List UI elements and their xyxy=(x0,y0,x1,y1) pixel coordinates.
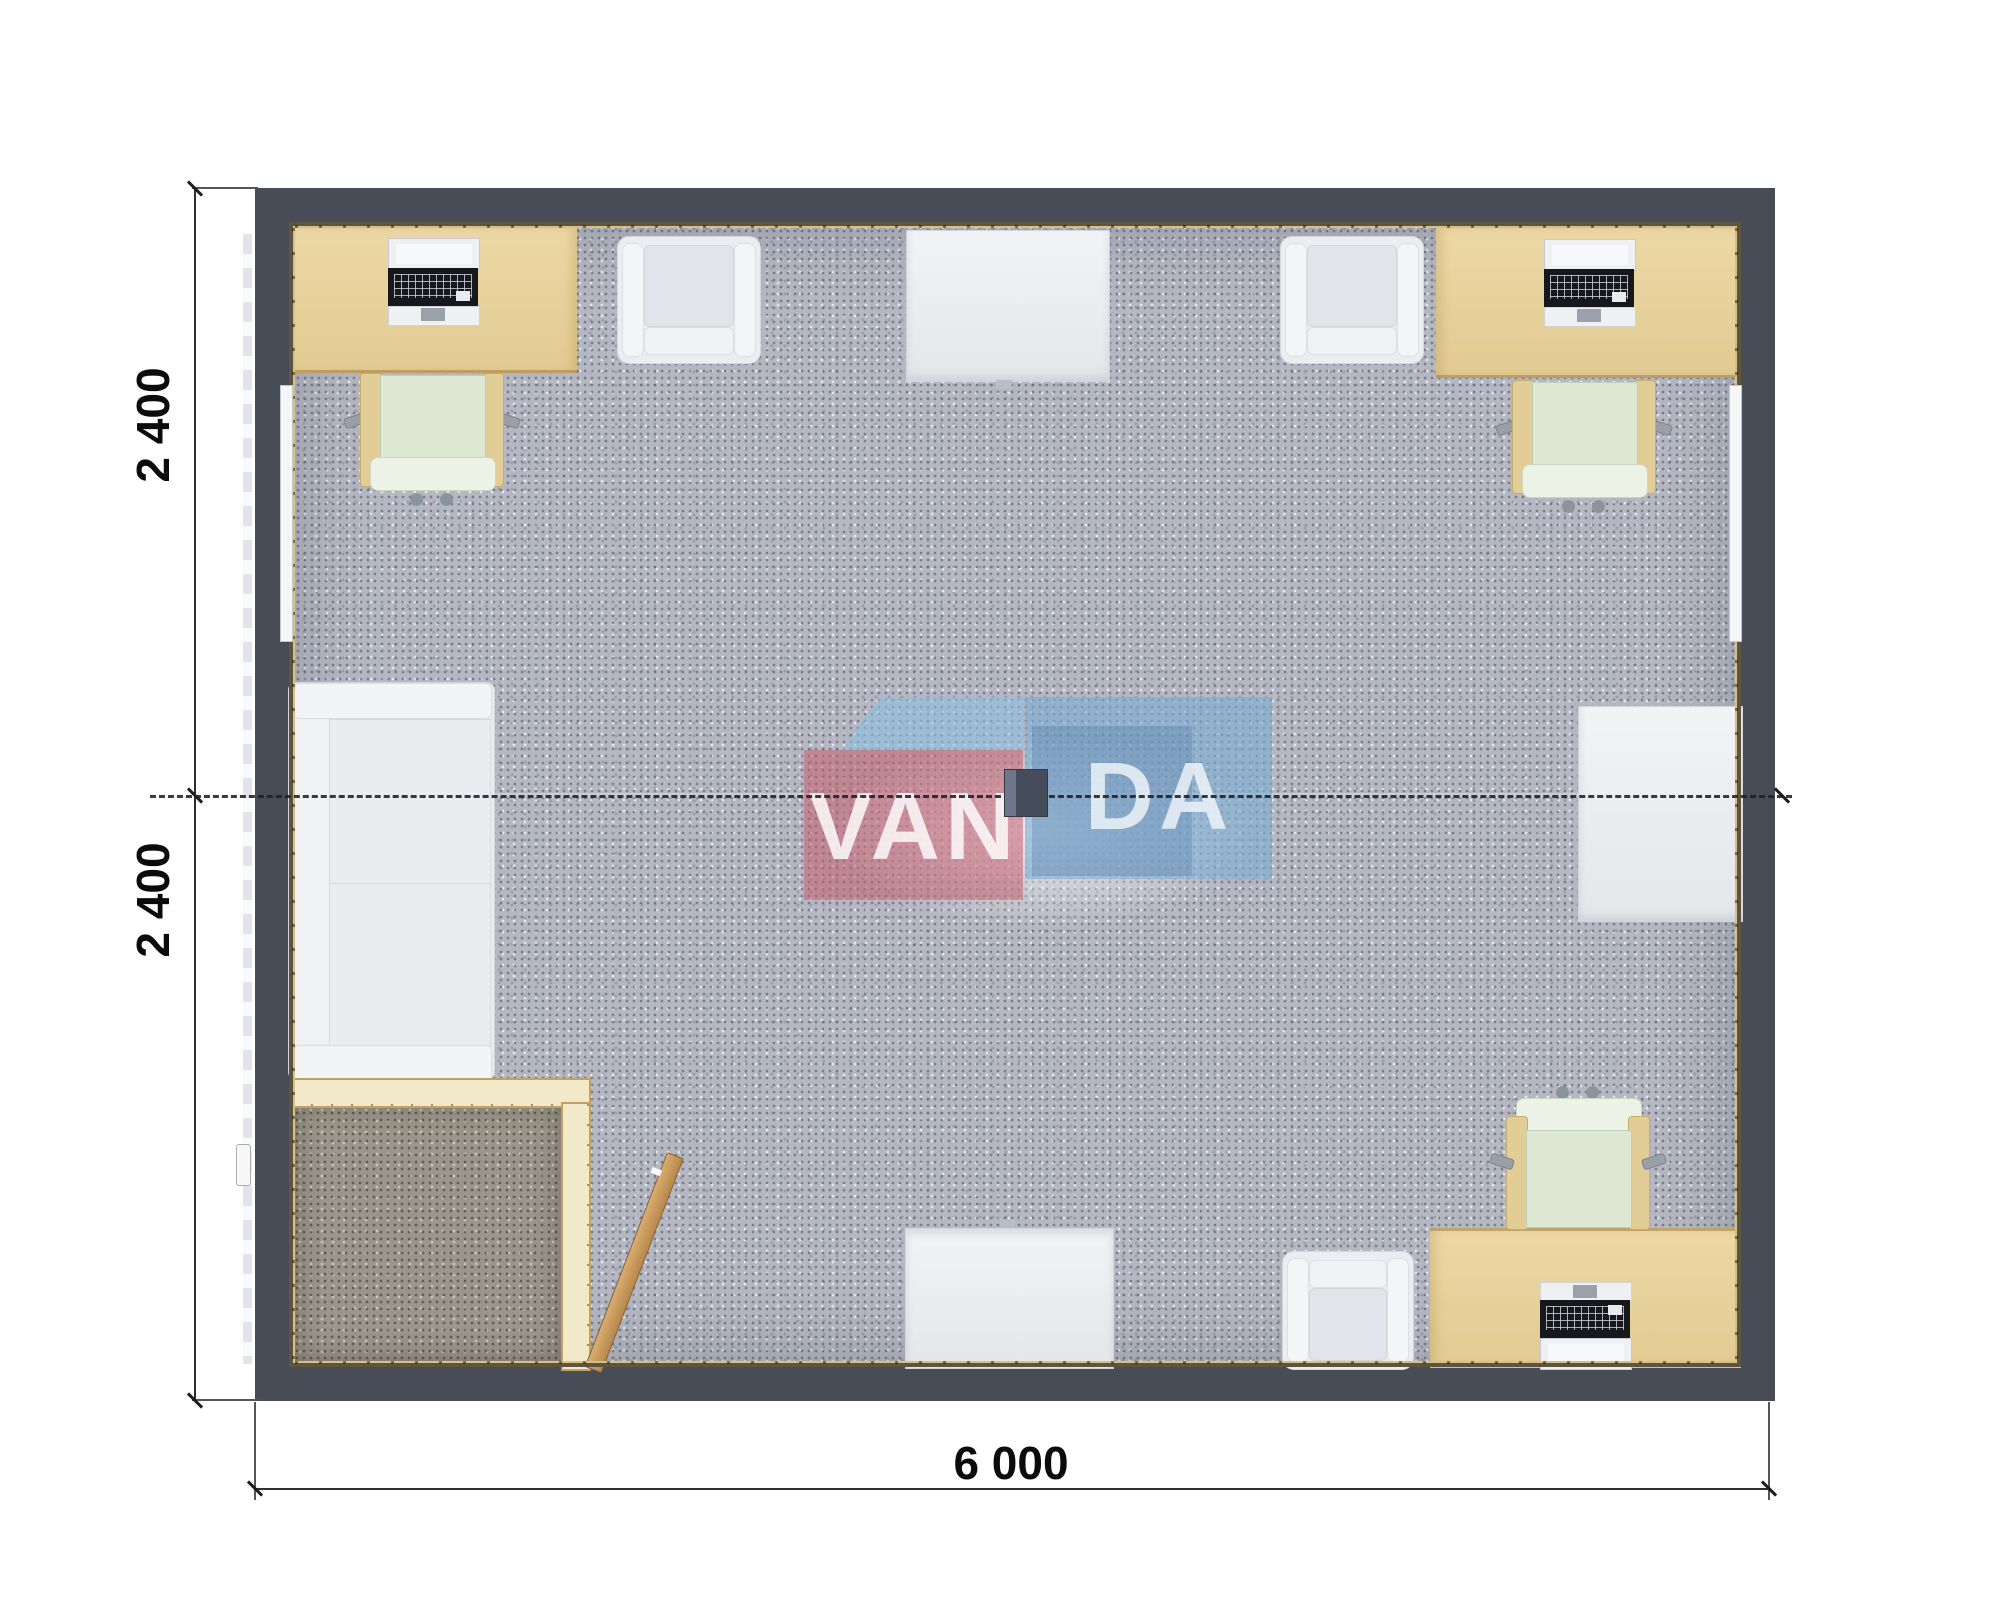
sofa-backrest xyxy=(291,689,329,1073)
chair-seat xyxy=(1532,382,1638,466)
armchair-cushion xyxy=(1307,245,1397,327)
armchair-arm xyxy=(1287,1258,1309,1363)
laptop-bottom-right xyxy=(1540,1282,1630,1368)
dimension-label-left-top: 2 400 xyxy=(126,367,180,482)
chair-frame xyxy=(1506,1116,1528,1230)
laptop-keyboard-icon xyxy=(388,268,478,306)
table-foot xyxy=(1000,1219,1015,1228)
armchair-arm xyxy=(622,243,644,357)
office-chair-bottom-right xyxy=(1498,1096,1658,1230)
sofa-armrest xyxy=(293,683,492,719)
sofa-left xyxy=(288,682,495,1080)
table-foot xyxy=(996,380,1012,389)
laptop-touchpad-icon xyxy=(1573,1285,1597,1298)
armchair-arm xyxy=(1285,243,1307,357)
wall-lining-ticks-top xyxy=(295,225,1735,228)
armchair-cushion xyxy=(644,245,734,327)
section-line xyxy=(150,795,1792,798)
ceiling-unit xyxy=(1004,769,1048,817)
armchair-arm xyxy=(1387,1258,1409,1363)
laptop-keyboard-icon xyxy=(1540,1300,1630,1338)
side-table-right xyxy=(1578,706,1743,922)
chair-backrest xyxy=(1522,464,1648,498)
entry-partition-horizontal xyxy=(289,1078,591,1108)
armchair-bottom xyxy=(1282,1251,1414,1370)
sofa-armrest xyxy=(293,1045,492,1081)
floor-plan-page: { "plan": { "type": "modular office floo… xyxy=(0,0,2000,1598)
armchair-seat-front xyxy=(1309,1260,1387,1288)
dimension-label-left-bottom: 2 400 xyxy=(126,842,180,957)
chair-wheel-icon xyxy=(1592,500,1605,513)
chair-wheel-icon xyxy=(440,493,453,506)
office-chair-top-left xyxy=(352,371,512,517)
window-right xyxy=(1729,385,1742,642)
laptop-top-right xyxy=(1544,239,1634,325)
laptop-top-left xyxy=(388,238,478,324)
sofa-cushion xyxy=(329,719,491,885)
office-chair-top-right xyxy=(1504,378,1664,524)
meeting-table-bottom xyxy=(905,1228,1114,1369)
armchair-cushion xyxy=(1309,1288,1387,1361)
sofa-cushion xyxy=(329,883,491,1047)
laptop-screen-icon xyxy=(1544,239,1636,271)
chair-backrest xyxy=(370,457,496,491)
chair-wheel-icon xyxy=(410,493,423,506)
armchair-top-right xyxy=(1280,236,1424,364)
window-left xyxy=(280,385,293,642)
wall-lining-ticks-bottom xyxy=(295,1361,1735,1364)
extension-line-top-left xyxy=(192,187,258,189)
chair-backrest xyxy=(1516,1098,1642,1132)
laptop-touchpad-icon xyxy=(1577,309,1601,322)
laptop-screen-icon xyxy=(388,238,480,270)
extension-line-bottom-left xyxy=(192,1399,258,1401)
chair-seat xyxy=(1526,1130,1632,1228)
meeting-table-top xyxy=(906,230,1110,382)
chair-seat xyxy=(380,375,486,459)
armchair-top-left xyxy=(617,236,761,364)
laptop-screen-icon xyxy=(1540,1338,1632,1370)
left-wall-cladding xyxy=(243,234,252,1364)
armchair-seat-front xyxy=(644,327,734,355)
chair-wheel-icon xyxy=(1562,500,1575,513)
laptop-touchpad-icon xyxy=(421,308,445,321)
armchair-arm xyxy=(1397,243,1419,357)
armchair-arm xyxy=(734,243,756,357)
watermark-cube-top-face xyxy=(804,698,1024,750)
entry-door-exterior-handle xyxy=(236,1144,251,1186)
watermark-text-van: VAN xyxy=(809,774,1019,879)
entry-floor xyxy=(295,1104,561,1361)
entry-partition-vertical xyxy=(561,1102,591,1371)
armchair-seat-front xyxy=(1307,327,1397,355)
dimension-label-bottom: 6 000 xyxy=(953,1436,1068,1490)
laptop-keyboard-icon xyxy=(1544,269,1634,307)
